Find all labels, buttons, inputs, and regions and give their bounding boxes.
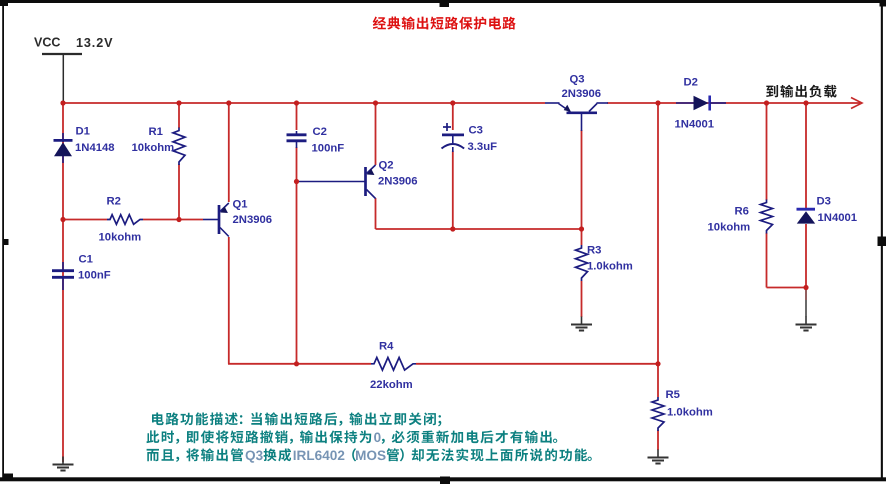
svg-text:10kohm: 10kohm	[132, 142, 175, 154]
svg-text:1N4001: 1N4001	[818, 212, 858, 224]
svg-text:Q2: Q2	[379, 160, 394, 172]
svg-text:R5: R5	[666, 389, 680, 401]
svg-text:C2: C2	[313, 126, 327, 138]
svg-text:R1: R1	[149, 126, 163, 138]
svg-text:C1: C1	[79, 254, 93, 266]
svg-text:2N3906: 2N3906	[378, 175, 418, 187]
svg-text:VCC: VCC	[34, 36, 60, 50]
svg-text:2N3906: 2N3906	[233, 214, 273, 226]
svg-text:22kohm: 22kohm	[370, 379, 413, 391]
svg-text:Q3: Q3	[570, 74, 585, 86]
svg-text:1N4148: 1N4148	[75, 142, 115, 154]
svg-text:2N3906: 2N3906	[562, 88, 602, 100]
svg-text:D2: D2	[684, 77, 698, 89]
svg-text:1.0kohm: 1.0kohm	[587, 260, 633, 272]
svg-text:D1: D1	[76, 126, 90, 138]
svg-text:13.2V: 13.2V	[76, 36, 113, 50]
svg-text:R4: R4	[379, 341, 394, 353]
svg-text:R6: R6	[735, 206, 749, 218]
svg-text:R2: R2	[107, 196, 121, 208]
svg-text:1N4001: 1N4001	[675, 118, 715, 130]
svg-text:10kohm: 10kohm	[99, 232, 142, 244]
svg-text:1.0kohm: 1.0kohm	[667, 407, 713, 419]
svg-text:100nF: 100nF	[78, 269, 111, 281]
svg-text:3.3uF: 3.3uF	[468, 141, 498, 153]
svg-text:D3: D3	[817, 196, 831, 208]
svg-text:10kohm: 10kohm	[708, 222, 751, 234]
svg-text:Q1: Q1	[233, 199, 248, 211]
svg-text:C3: C3	[469, 125, 483, 137]
svg-text:R3: R3	[587, 245, 601, 257]
svg-text:100nF: 100nF	[312, 143, 345, 155]
